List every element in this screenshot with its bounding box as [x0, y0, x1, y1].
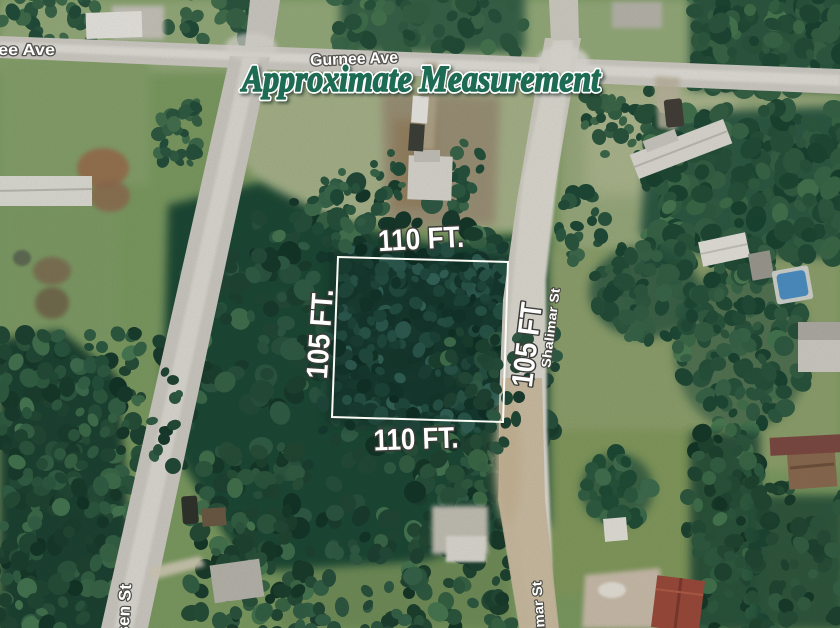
svg-text:105 FT.: 105 FT.: [301, 288, 340, 380]
svg-text:110 FT.: 110 FT.: [373, 422, 459, 458]
svg-text:110 FT.: 110 FT.: [377, 221, 465, 258]
svg-text:Gurnee Ave: Gurnee Ave: [0, 42, 55, 59]
svg-text:Hansen St: Hansen St: [112, 583, 135, 628]
svg-text:Approximate Measurement: Approximate Measurement: [240, 59, 601, 100]
